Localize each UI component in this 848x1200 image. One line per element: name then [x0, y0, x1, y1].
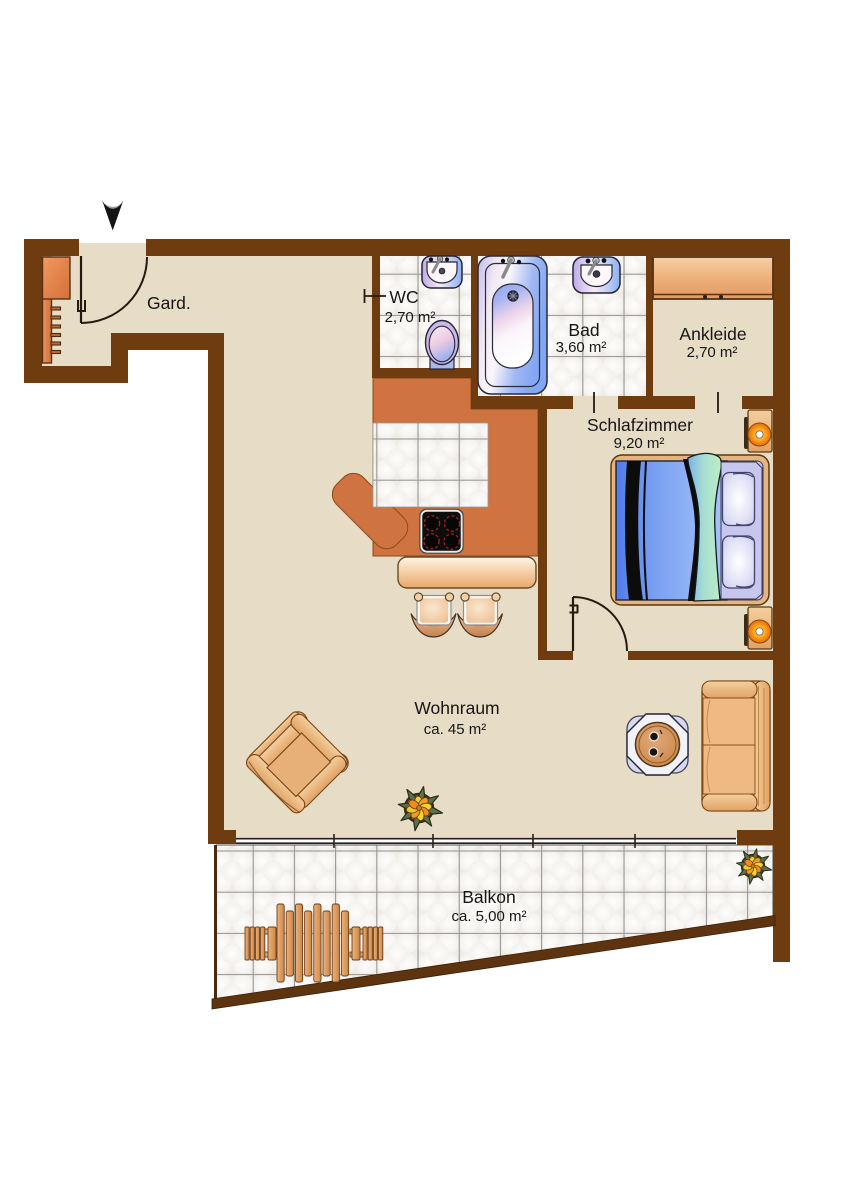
svg-text:WC: WC — [389, 287, 418, 307]
svg-text:2,70 m²: 2,70 m² — [385, 309, 436, 326]
svg-text:Balkon: Balkon — [462, 887, 516, 907]
svg-text:Schlafzimmer: Schlafzimmer — [587, 415, 693, 435]
svg-text:3,60 m²: 3,60 m² — [556, 339, 607, 356]
svg-text:Wohnraum: Wohnraum — [414, 698, 499, 718]
svg-text:ca. 45 m²: ca. 45 m² — [424, 721, 487, 738]
svg-text:Ankleide: Ankleide — [679, 324, 746, 344]
svg-text:Gard.: Gard. — [147, 293, 191, 313]
svg-text:Bad: Bad — [568, 320, 599, 340]
svg-text:ca. 5,00 m²: ca. 5,00 m² — [451, 908, 526, 925]
svg-text:9,20 m²: 9,20 m² — [614, 435, 665, 452]
svg-text:2,70 m²: 2,70 m² — [687, 344, 738, 361]
